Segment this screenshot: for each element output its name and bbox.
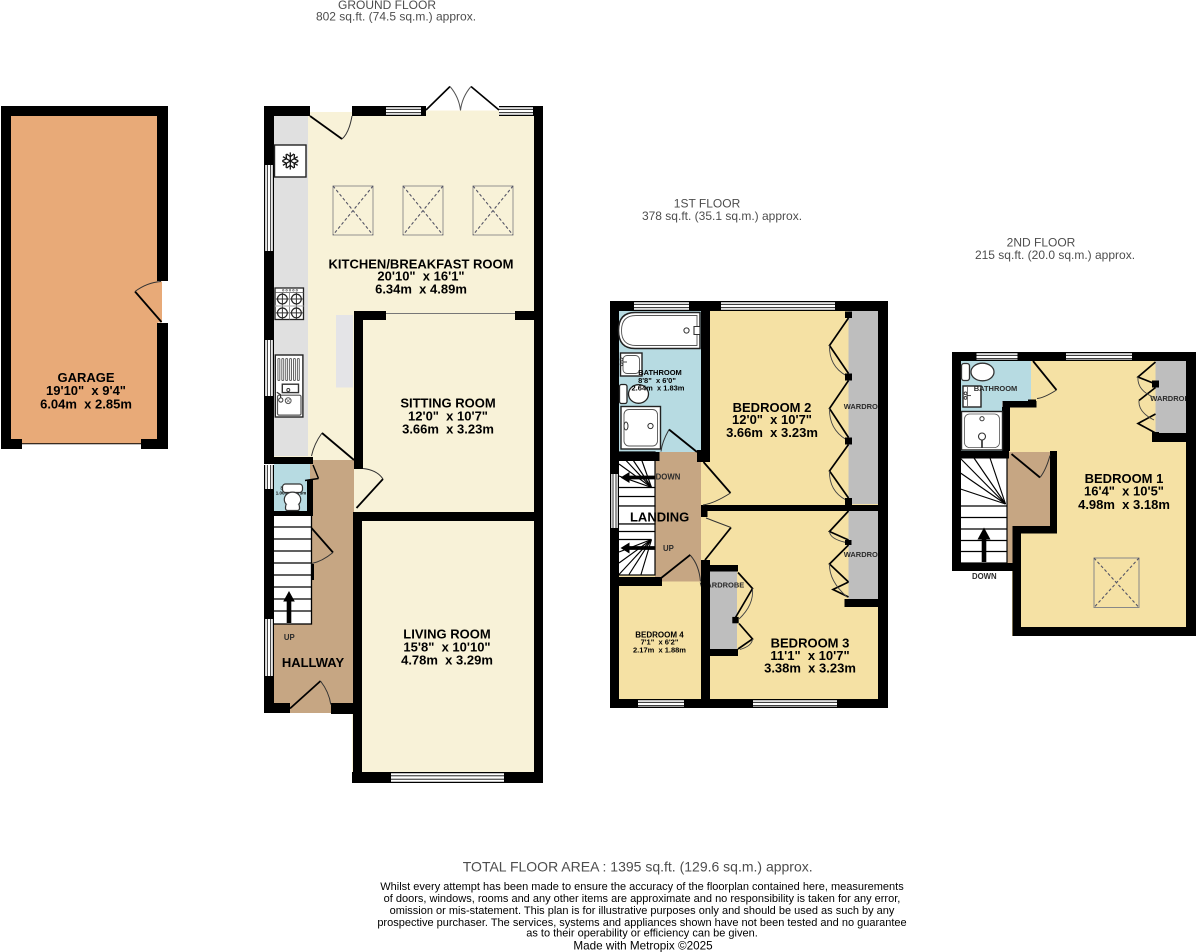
svg-text:3.38m x 3.23m: 3.38m x 3.23m	[764, 661, 856, 676]
svg-text:LANDING: LANDING	[630, 510, 689, 525]
svg-text:DOWN: DOWN	[972, 572, 997, 581]
svg-text:4.78m x 3.29m: 4.78m x 3.29m	[401, 653, 493, 668]
svg-text:2.17m x 1.88m: 2.17m x 1.88m	[633, 646, 686, 655]
svg-text:3.66m x 3.23m: 3.66m x 3.23m	[402, 422, 494, 437]
svg-text:BATHROOM: BATHROOM	[974, 384, 1018, 393]
svg-text:215 sq.ft. (20.0 sq.m.) approx: 215 sq.ft. (20.0 sq.m.) approx.	[975, 248, 1135, 262]
svg-text:3.66m x 3.23m: 3.66m x 3.23m	[726, 425, 818, 440]
svg-text:DOWN: DOWN	[656, 472, 681, 481]
svg-text:HALLWAY: HALLWAY	[282, 655, 345, 670]
svg-text:4.98m x 3.18m: 4.98m x 3.18m	[1078, 497, 1170, 512]
svg-text:Made with Metropix ©2025: Made with Metropix ©2025	[573, 939, 713, 952]
svg-text:TOTAL FLOOR AREA : 1395 sq.ft.: TOTAL FLOOR AREA : 1395 sq.ft. (129.6 sq…	[463, 859, 813, 875]
svg-text:6.34m x 4.89m: 6.34m x 4.89m	[375, 281, 467, 296]
svg-text:of doors, windows, rooms and a: of doors, windows, rooms and any other i…	[384, 893, 901, 905]
svg-text:802 sq.ft. (74.5 sq.m.) approx: 802 sq.ft. (74.5 sq.m.) approx.	[316, 10, 476, 24]
svg-text:as to their operability or eff: as to their operability or efficiency ca…	[526, 928, 758, 940]
svg-text:378 sq.ft. (35.1 sq.m.) approx: 378 sq.ft. (35.1 sq.m.) approx.	[642, 209, 802, 223]
svg-text:UP: UP	[284, 633, 295, 642]
svg-text:2.64m x 1.83m: 2.64m x 1.83m	[632, 383, 685, 392]
svg-text:UP: UP	[663, 544, 674, 553]
svg-text:omission or mis-statement. Thi: omission or mis-statement. This plan is …	[390, 905, 895, 917]
svg-text:Whilst every attempt has been: Whilst every attempt has been made to en…	[380, 881, 904, 893]
svg-text:6.04m x 2.85m: 6.04m x 2.85m	[40, 397, 132, 412]
